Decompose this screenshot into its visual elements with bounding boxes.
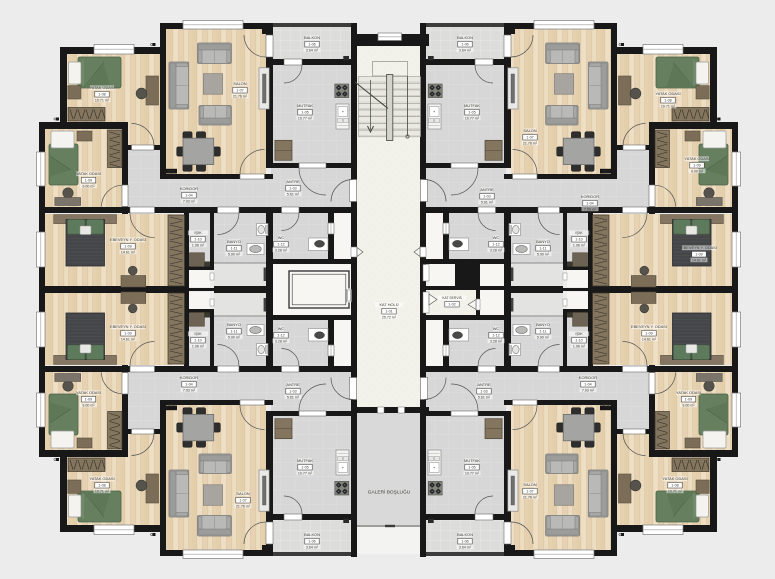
svg-text:21.76 m²: 21.76 m² xyxy=(236,504,251,508)
svg-text:MUTFAK: MUTFAK xyxy=(297,458,313,463)
svg-text:1-04: 1-04 xyxy=(584,383,591,387)
svg-text:YATAK ODASI: YATAK ODASI xyxy=(684,156,709,161)
svg-text:MUTFAK: MUTFAK xyxy=(464,103,480,108)
svg-text:1-05: 1-05 xyxy=(301,466,308,470)
svg-text:1-09: 1-09 xyxy=(85,179,92,183)
svg-text:1.96 m²: 1.96 m² xyxy=(573,344,586,348)
svg-text:14.61 m²: 14.61 m² xyxy=(121,337,136,341)
svg-text:1-09: 1-09 xyxy=(645,332,652,336)
svg-text:10.77 m²: 10.77 m² xyxy=(298,116,313,120)
svg-text:7.93 m²: 7.93 m² xyxy=(183,199,196,203)
svg-text:YATAK ODASI: YATAK ODASI xyxy=(76,390,101,395)
svg-text:BANYO: BANYO xyxy=(536,322,550,327)
svg-text:10.77 m²: 10.77 m² xyxy=(465,116,480,120)
svg-text:YATAK ODASI: YATAK ODASI xyxy=(89,85,114,90)
svg-text:5.61 m²: 5.61 m² xyxy=(481,200,494,204)
svg-text:ANTRE: ANTRE xyxy=(286,179,300,184)
svg-text:5.90 m²: 5.90 m² xyxy=(537,335,550,339)
svg-text:KORIDOR: KORIDOR xyxy=(581,194,599,199)
svg-text:10.71 m²: 10.71 m² xyxy=(668,489,683,493)
svg-text:14.61 m²: 14.61 m² xyxy=(692,258,707,262)
svg-text:3.64 m²: 3.64 m² xyxy=(306,545,319,549)
svg-text:1-05: 1-05 xyxy=(468,111,475,115)
svg-text:SCS: SCS xyxy=(168,169,175,173)
svg-text:10.71 m²: 10.71 m² xyxy=(95,489,110,493)
svg-text:21.76 m²: 21.76 m² xyxy=(523,495,538,499)
svg-text:1-09: 1-09 xyxy=(85,398,92,402)
svg-text:ANTRE: ANTRE xyxy=(480,187,494,192)
svg-text:7.93 m²: 7.93 m² xyxy=(183,388,196,392)
svg-text:YATAK ODASI: YATAK ODASI xyxy=(89,476,114,481)
svg-text:KORIDOR: KORIDOR xyxy=(180,375,198,380)
svg-text:ANTRE: ANTRE xyxy=(477,382,491,387)
svg-text:9.00 m²: 9.00 m² xyxy=(691,169,704,173)
svg-text:1-12: 1-12 xyxy=(277,243,284,247)
svg-text:IŞIK: IŞIK xyxy=(575,331,583,336)
svg-text:BALKON: BALKON xyxy=(457,35,473,40)
svg-text:SALON: SALON xyxy=(523,128,536,133)
svg-text:5.61 m²: 5.61 m² xyxy=(287,395,300,399)
svg-text:EBEVEYN Y. ODASI: EBEVEYN Y. ODASI xyxy=(110,237,146,242)
svg-text:21.76 m²: 21.76 m² xyxy=(523,141,538,145)
svg-text:1-02: 1-02 xyxy=(448,303,455,307)
svg-text:1-06: 1-06 xyxy=(461,43,468,47)
svg-text:5.90 m²: 5.90 m² xyxy=(228,252,241,256)
svg-text:1-09: 1-09 xyxy=(685,398,692,402)
svg-text:1-08: 1-08 xyxy=(671,484,678,488)
svg-text:EBEVEYN Y. ODASI: EBEVEYN Y. ODASI xyxy=(631,324,667,329)
svg-text:1-11: 1-11 xyxy=(230,330,237,334)
svg-text:14.61 m²: 14.61 m² xyxy=(642,337,657,341)
svg-text:BALKON: BALKON xyxy=(304,35,320,40)
svg-text:1-10: 1-10 xyxy=(194,238,201,242)
svg-text:3.28 m²: 3.28 m² xyxy=(275,248,288,252)
svg-text:1-04: 1-04 xyxy=(586,202,593,206)
svg-text:KAT SERVİS: KAT SERVİS xyxy=(442,295,462,300)
svg-text:5.90 m²: 5.90 m² xyxy=(537,252,550,256)
svg-text:1.96 m²: 1.96 m² xyxy=(573,243,586,247)
svg-text:1-08: 1-08 xyxy=(98,484,105,488)
svg-text:1-12: 1-12 xyxy=(492,334,499,338)
svg-text:3.64 m²: 3.64 m² xyxy=(459,545,472,549)
svg-text:GALERİ BOŞLUĞU: GALERİ BOŞLUĞU xyxy=(368,489,411,496)
svg-text:YATAK ODASI: YATAK ODASI xyxy=(676,390,701,395)
svg-text:IŞIK: IŞIK xyxy=(194,230,202,235)
svg-text:WC: WC xyxy=(278,235,285,240)
svg-text:1-12: 1-12 xyxy=(277,334,284,338)
svg-text:1-06: 1-06 xyxy=(308,43,315,47)
svg-text:1-10: 1-10 xyxy=(575,339,582,343)
svg-text:9.00 m²: 9.00 m² xyxy=(682,403,695,407)
svg-text:1-05: 1-05 xyxy=(468,466,475,470)
svg-text:EBEVEYN Y. ODASI: EBEVEYN Y. ODASI xyxy=(110,324,146,329)
svg-text:3.64 m²: 3.64 m² xyxy=(459,48,472,52)
svg-text:10.77 m²: 10.77 m² xyxy=(465,471,480,475)
svg-text:1-07: 1-07 xyxy=(239,499,246,503)
svg-text:1-07: 1-07 xyxy=(236,89,243,93)
svg-text:10.77 m²: 10.77 m² xyxy=(298,471,313,475)
svg-text:1-03: 1-03 xyxy=(289,390,296,394)
svg-text:9.00 m²: 9.00 m² xyxy=(82,403,95,407)
svg-text:10.71 m²: 10.71 m² xyxy=(95,98,110,102)
svg-text:5.61 m²: 5.61 m² xyxy=(287,192,300,196)
svg-text:WC: WC xyxy=(278,326,285,331)
svg-text:SCS: SCS xyxy=(168,404,175,408)
svg-text:1-10: 1-10 xyxy=(194,339,201,343)
svg-text:1-07: 1-07 xyxy=(526,490,533,494)
svg-text:1-09: 1-09 xyxy=(124,245,131,249)
svg-text:3.28 m²: 3.28 m² xyxy=(490,248,503,252)
svg-text:KORIDOR: KORIDOR xyxy=(579,375,597,380)
svg-text:1-03: 1-03 xyxy=(289,187,296,191)
svg-text:MUTFAK: MUTFAK xyxy=(464,458,480,463)
svg-text:1-03: 1-03 xyxy=(480,390,487,394)
svg-text:7.93 m²: 7.93 m² xyxy=(584,207,597,211)
svg-text:BANYO: BANYO xyxy=(227,239,241,244)
svg-text:1-09: 1-09 xyxy=(693,164,700,168)
svg-text:1-08: 1-08 xyxy=(664,99,671,103)
svg-text:1-04: 1-04 xyxy=(185,194,192,198)
svg-text:IŞIK: IŞIK xyxy=(194,331,202,336)
svg-text:BANYO: BANYO xyxy=(536,239,550,244)
svg-text:1-09: 1-09 xyxy=(124,332,131,336)
svg-text:YATAK ODASI: YATAK ODASI xyxy=(76,171,101,176)
svg-text:1-09: 1-09 xyxy=(695,253,702,257)
svg-text:MUTFAK: MUTFAK xyxy=(297,103,313,108)
svg-text:5.90 m²: 5.90 m² xyxy=(228,335,241,339)
svg-text:10.71 m²: 10.71 m² xyxy=(661,104,676,108)
svg-text:IŞIK: IŞIK xyxy=(575,230,583,235)
svg-text:1-10: 1-10 xyxy=(575,238,582,242)
svg-text:7.93 m²: 7.93 m² xyxy=(582,388,595,392)
svg-text:WC: WC xyxy=(493,235,500,240)
svg-text:1-12: 1-12 xyxy=(492,243,499,247)
svg-text:21.76 m²: 21.76 m² xyxy=(233,94,248,98)
svg-text:3.64 m²: 3.64 m² xyxy=(306,48,319,52)
svg-text:1-06: 1-06 xyxy=(461,540,468,544)
svg-text:SALON: SALON xyxy=(233,81,246,86)
svg-text:BALKON: BALKON xyxy=(457,532,473,537)
svg-text:BALKON: BALKON xyxy=(304,532,320,537)
svg-text:5.61 m²: 5.61 m² xyxy=(478,395,491,399)
svg-text:WC: WC xyxy=(493,326,500,331)
svg-text:KAT HOLÜ: KAT HOLÜ xyxy=(379,302,398,307)
svg-text:1-11: 1-11 xyxy=(539,247,546,251)
svg-text:14.61 m²: 14.61 m² xyxy=(121,250,136,254)
svg-text:YATAK ODASI: YATAK ODASI xyxy=(662,476,687,481)
svg-text:1-11: 1-11 xyxy=(230,247,237,251)
svg-text:9.00 m²: 9.00 m² xyxy=(82,184,95,188)
svg-text:1-07: 1-07 xyxy=(526,136,533,140)
svg-text:1-11: 1-11 xyxy=(539,330,546,334)
svg-text:1.96 m²: 1.96 m² xyxy=(192,243,205,247)
svg-text:1-05: 1-05 xyxy=(301,111,308,115)
svg-text:1.96 m²: 1.96 m² xyxy=(192,344,205,348)
svg-text:EBEVEYN Y. ODASI: EBEVEYN Y. ODASI xyxy=(681,245,717,250)
svg-text:SALON: SALON xyxy=(236,491,249,496)
svg-text:BANYO: BANYO xyxy=(227,322,241,327)
svg-text:3.28 m²: 3.28 m² xyxy=(275,339,288,343)
svg-text:1-01: 1-01 xyxy=(385,310,392,314)
svg-text:1-08: 1-08 xyxy=(98,93,105,97)
svg-text:1-04: 1-04 xyxy=(185,383,192,387)
svg-text:YATAK ODASI: YATAK ODASI xyxy=(655,91,680,96)
svg-text:3.28 m²: 3.28 m² xyxy=(490,339,503,343)
svg-text:1-06: 1-06 xyxy=(308,540,315,544)
svg-text:25.72 m²: 25.72 m² xyxy=(382,315,397,319)
svg-text:ANTRE: ANTRE xyxy=(286,382,300,387)
svg-text:SALON: SALON xyxy=(523,482,536,487)
svg-text:1-03: 1-03 xyxy=(483,195,490,199)
svg-text:KORIDOR: KORIDOR xyxy=(180,186,198,191)
